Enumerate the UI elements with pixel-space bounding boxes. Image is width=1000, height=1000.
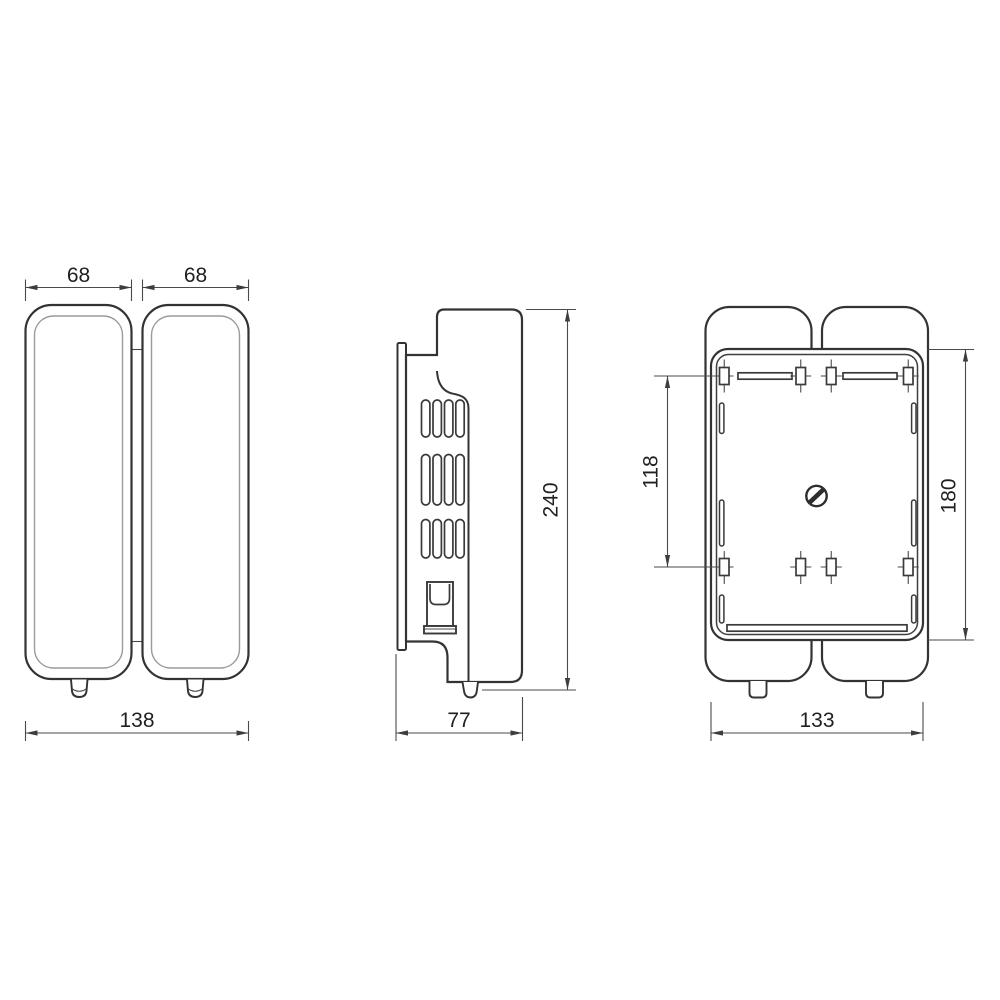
technical-drawing-canvas: 68 68 138: [0, 0, 1000, 1000]
vent-slot: [422, 520, 430, 559]
dimension-label: 138: [119, 709, 154, 732]
keyhole-slot: [738, 373, 792, 379]
side-view: 240 77: [396, 310, 576, 742]
vent-slot: [456, 520, 464, 559]
dimension-label: 240: [540, 482, 563, 517]
side-wall-bracket: [398, 343, 407, 650]
screw-hole: [827, 559, 837, 576]
edge-slot: [720, 403, 724, 434]
vent-slot: [445, 520, 453, 559]
dimension-label: 180: [938, 478, 961, 513]
vent-slot: [456, 455, 464, 506]
dim-back-plate-width: 133: [711, 702, 923, 741]
latch-flange: [424, 626, 456, 634]
drawing-svg: 68 68 138: [0, 0, 1000, 1000]
back-view: 118 180 133: [640, 307, 975, 741]
dimension-label: 133: [799, 709, 834, 732]
dim-back-hole-spacing: 118: [640, 376, 668, 567]
dimension-label: 68: [67, 264, 90, 287]
vent-slot: [422, 400, 430, 437]
screw-hole: [796, 559, 806, 576]
screw-hole: [720, 368, 730, 385]
screw-hole: [720, 559, 730, 576]
front-right-body-outline: [143, 305, 249, 679]
dim-back-plate-height: 180: [927, 350, 974, 641]
dim-front-total-width: 138: [26, 709, 249, 741]
edge-slot: [720, 500, 724, 546]
keyhole-slot: [843, 373, 897, 379]
vent-slot: [433, 520, 441, 559]
dim-front-right-width: 68: [143, 264, 249, 301]
edge-slot: [912, 595, 916, 623]
vent-slot: [445, 400, 453, 437]
vent-slot: [422, 455, 430, 506]
vent-slot: [433, 400, 441, 437]
dimension-label: 77: [447, 709, 470, 732]
edge-slot: [912, 500, 916, 546]
center-screw: [806, 486, 826, 506]
vent-slot: [456, 400, 464, 437]
back-left-nozzle: [750, 681, 767, 698]
screw-hole: [904, 559, 914, 576]
side-nozzle: [463, 682, 479, 698]
vent-slot: [433, 455, 441, 506]
front-left-nozzle: [71, 680, 88, 698]
dim-front-left-width: 68: [26, 264, 132, 301]
front-right-nozzle: [187, 680, 204, 698]
edge-slot: [720, 595, 724, 623]
screw-hole: [904, 368, 914, 385]
dimension-label: 118: [640, 455, 663, 488]
edge-slot: [912, 403, 916, 434]
dimension-label: 68: [184, 264, 207, 287]
screw-hole: [827, 368, 837, 385]
front-view: 68 68 138: [26, 264, 249, 741]
plate-bottom-slot: [727, 625, 907, 631]
back-right-nozzle: [866, 681, 883, 698]
side-latch-button: [424, 582, 456, 634]
front-left-body-outline: [26, 305, 132, 679]
vent-slot: [445, 455, 453, 506]
screw-hole: [796, 368, 806, 385]
